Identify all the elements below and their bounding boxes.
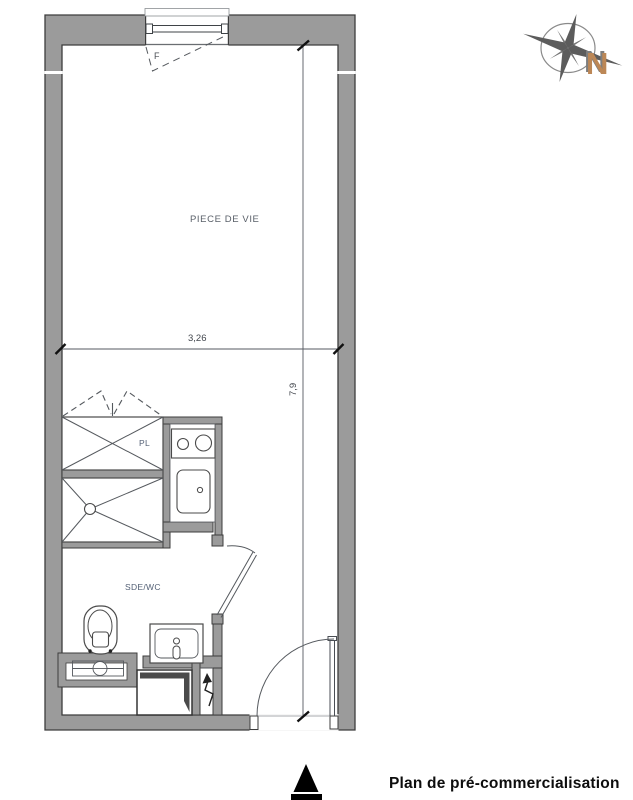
dimension-width-label: 3,26: [188, 333, 207, 344]
entrance-opening: [250, 714, 339, 731]
dimension-width: 3,26: [56, 333, 344, 354]
wall-right-of-washer: [192, 662, 200, 715]
bathroom-door: [217, 546, 257, 618]
toilet-hinge-right: [109, 649, 112, 652]
floor-plan-svg: F: [0, 0, 633, 800]
wall-joint-mark-right: [337, 71, 355, 74]
closet-label: PL: [139, 438, 150, 448]
shower-drain: [85, 504, 96, 515]
entrance-door: [257, 637, 337, 717]
window-label: F: [154, 51, 160, 61]
window-glass: [152, 26, 222, 33]
window-cap-right: [222, 24, 229, 34]
closet-folding-doors: [63, 391, 162, 416]
entrance-jamb-right: [330, 716, 338, 729]
wall-joint-mark-left: [44, 71, 62, 74]
wall-kitchen-top: [163, 417, 222, 424]
wall-below-door: [213, 624, 222, 715]
window-cap-left: [146, 24, 153, 34]
entrance-jamb-left: [250, 716, 258, 730]
kitchen-sink: [177, 470, 210, 513]
wall-kitchen-right: [215, 424, 222, 536]
dimension-height: 7,9: [288, 41, 309, 722]
door-post-bottom: [212, 614, 223, 624]
compass-rose: [514, 3, 632, 96]
wall-under-shower: [62, 542, 163, 548]
toilet-trap: [93, 632, 109, 647]
compass-star: [514, 3, 632, 96]
vent-zigzag-arrow: [205, 681, 213, 706]
toilet-hinge-left: [88, 649, 91, 652]
floor-plan-page: F: [0, 0, 633, 800]
door-post-top: [212, 535, 223, 546]
vent-arrowhead: [203, 673, 213, 684]
bathroom-label: SDE/WC: [125, 582, 161, 592]
plan-caption: Plan de pré-commercialisation: [389, 775, 620, 793]
north-label: N: [586, 48, 608, 79]
north-pointer: [291, 764, 322, 800]
washbasin-faucet-head: [174, 638, 180, 644]
living-room-label: PIECE DE VIE: [190, 214, 260, 225]
wall-kitchen-bottom: [163, 522, 213, 532]
dimension-height-label: 7,9: [288, 383, 299, 396]
entrance-door-arc: [257, 639, 334, 716]
washbasin-faucet-body: [173, 646, 180, 659]
bathroom-door-arc: [227, 546, 255, 553]
window-sill: [145, 9, 229, 17]
wall-under-closet: [62, 470, 163, 478]
shower: [62, 478, 163, 542]
